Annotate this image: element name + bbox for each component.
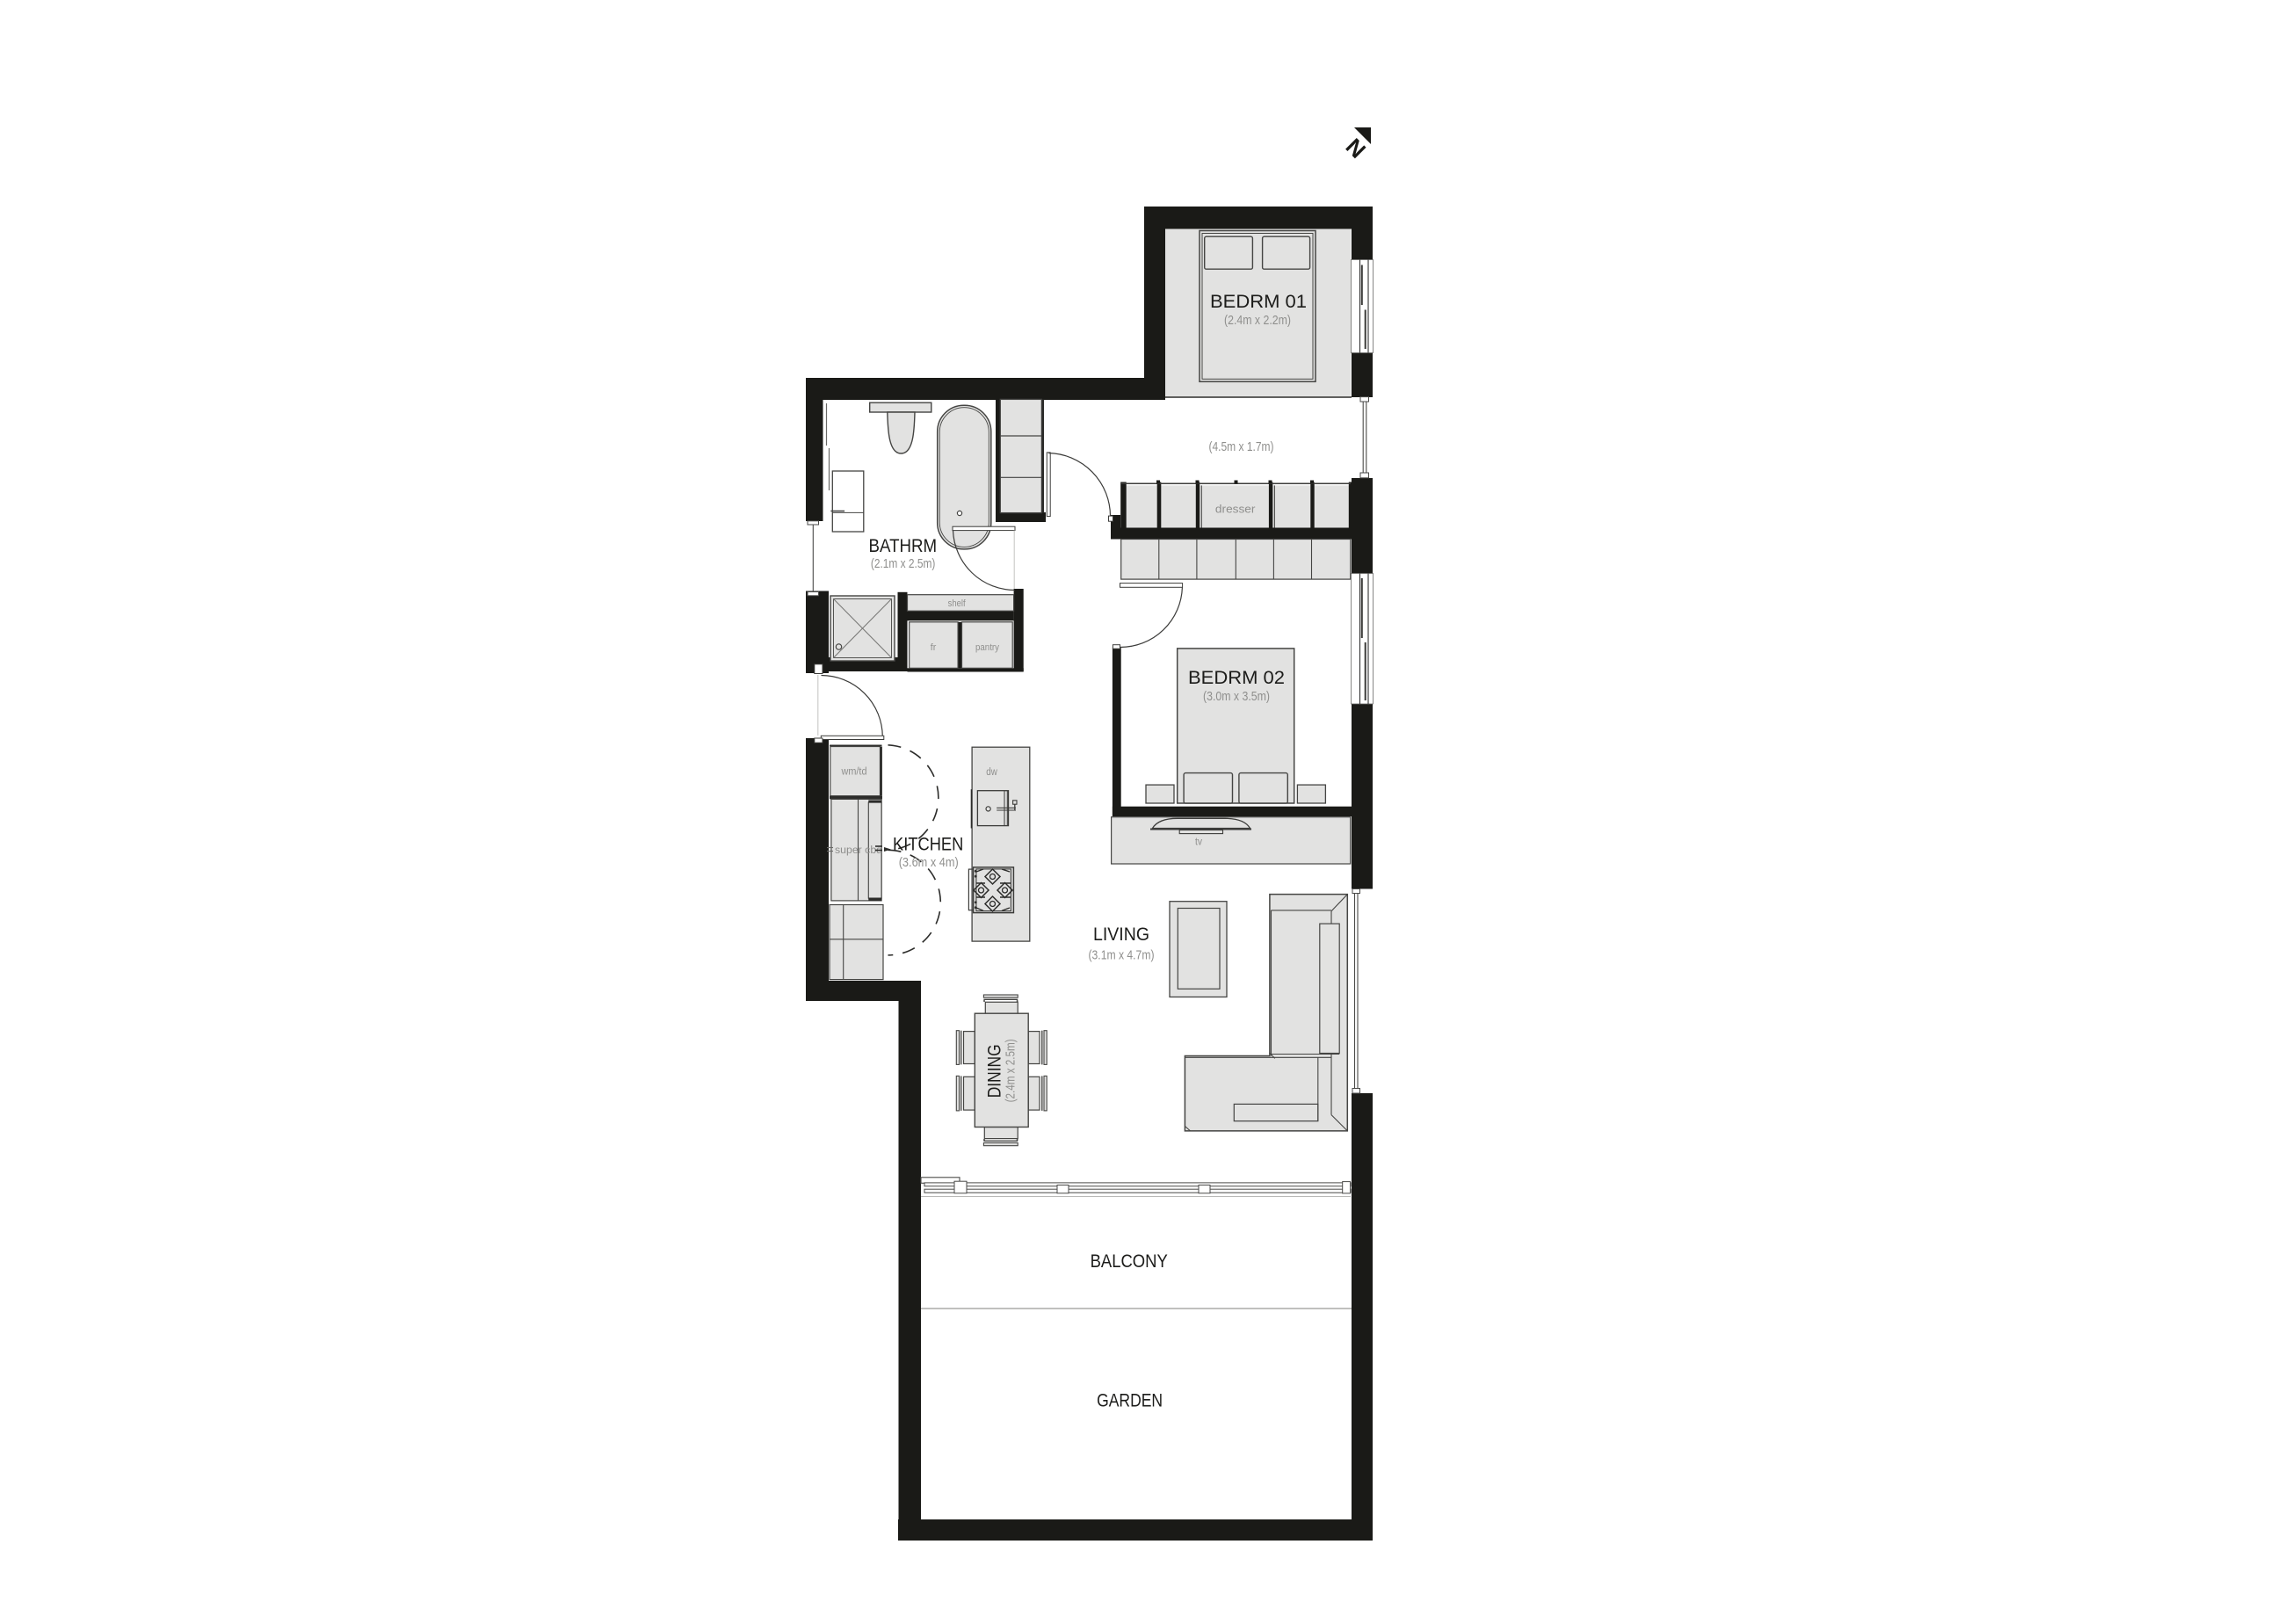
svg-text:BEDRM 02: BEDRM 02 xyxy=(1188,667,1285,688)
svg-text:(2.1m x 2.5m): (2.1m x 2.5m) xyxy=(871,556,936,571)
svg-text:KITCHEN: KITCHEN xyxy=(893,834,963,855)
svg-text:(3.6m x 4m): (3.6m x 4m) xyxy=(899,855,959,870)
svg-text:LIVING: LIVING xyxy=(1093,924,1149,945)
svg-text:(2.4m x 2.2m): (2.4m x 2.2m) xyxy=(1224,313,1291,328)
svg-text:BEDRM 01: BEDRM 01 xyxy=(1210,291,1307,312)
svg-text:GARDEN: GARDEN xyxy=(1097,1390,1163,1411)
svg-text:tv: tv xyxy=(1195,837,1202,848)
svg-text:shelf: shelf xyxy=(948,598,967,609)
svg-text:pantry: pantry xyxy=(975,642,999,653)
svg-text:fr: fr xyxy=(931,642,937,653)
svg-text:(3.1m x 4.7m): (3.1m x 4.7m) xyxy=(1089,948,1155,963)
svg-text:wm/td: wm/td xyxy=(841,767,867,778)
svg-text:BALCONY: BALCONY xyxy=(1091,1251,1168,1272)
svg-text:BATHRM: BATHRM xyxy=(869,535,938,556)
svg-text:dresser: dresser xyxy=(1215,504,1256,516)
svg-text:(3.0m x 3.5m): (3.0m x 3.5m) xyxy=(1203,689,1270,704)
svg-text:dw: dw xyxy=(986,767,997,778)
svg-text:(4.5m x 1.7m): (4.5m x 1.7m) xyxy=(1209,439,1274,454)
svg-text:(2.4m x 2.5m): (2.4m x 2.5m) xyxy=(1004,1039,1018,1102)
svg-text:super cbd: super cbd xyxy=(835,845,882,856)
svg-text:DINING: DINING xyxy=(984,1044,1005,1098)
